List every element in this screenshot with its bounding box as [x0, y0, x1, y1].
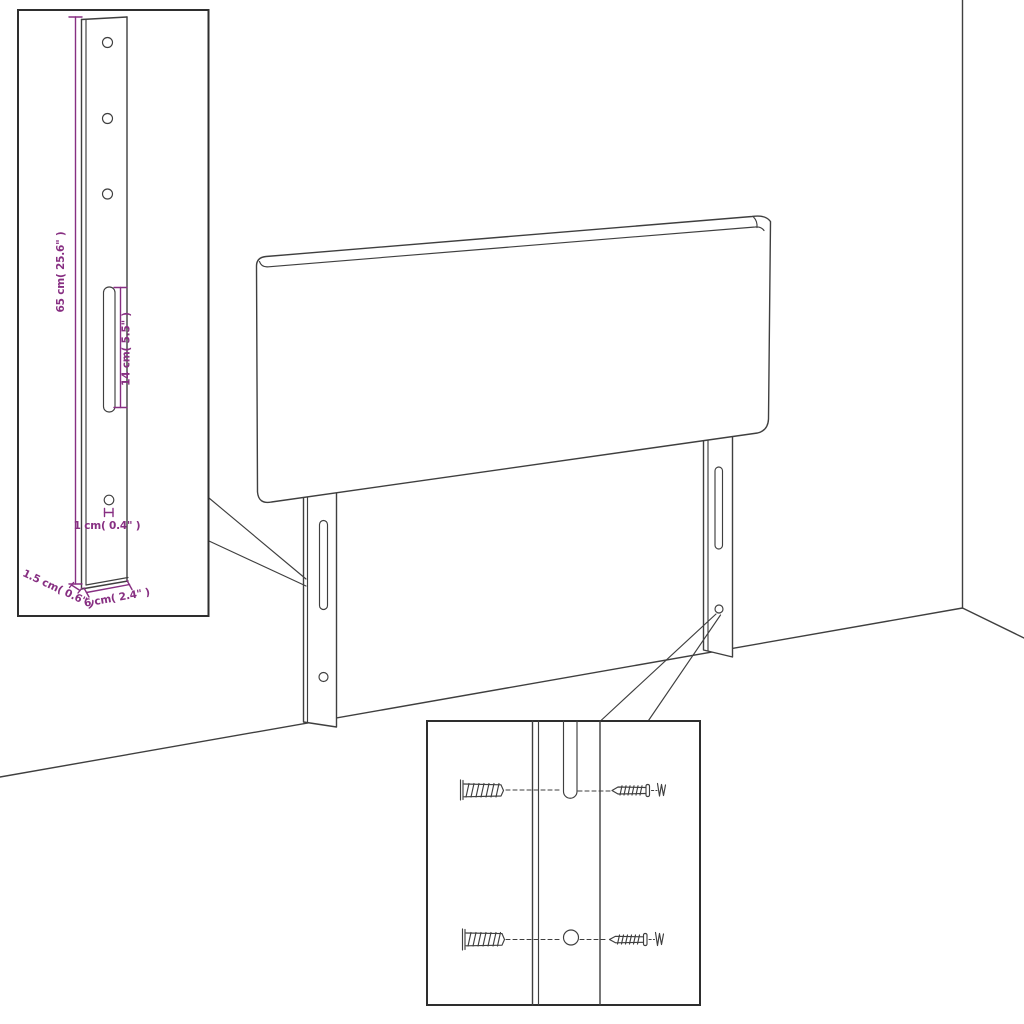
callout-line: [601, 614, 716, 721]
headboard-assembly-diagram: 65 cm( 25.6" ) 14 cm( 5.5" ) 1 cm( 0.4" …: [0, 0, 1024, 1024]
headboard-left-leg: [304, 484, 337, 727]
assembly-diagram-canvas: 65 cm( 25.6" ) 14 cm( 5.5" ) 1 cm( 0.4" …: [0, 0, 1024, 1024]
callout-lines-right-inset: [601, 614, 721, 721]
callout-lines-left-inset: [209, 498, 306, 586]
headboard-outline: [257, 216, 771, 502]
dim-label-text: 14 cm( 5.5" ): [121, 312, 133, 386]
bracket-detail-inset: 65 cm( 25.6" ) 14 cm( 5.5" ) 1 cm( 0.4" …: [18, 10, 209, 616]
label-hole-diameter: 1 cm( 0.4" ): [74, 520, 141, 532]
callout-line: [209, 498, 306, 579]
dim-label-text: 1 cm( 0.4" ): [74, 520, 141, 532]
floor-line-right: [963, 608, 1024, 638]
callout-line: [649, 615, 721, 721]
label-bracket-height: 65 cm( 25.6" ): [55, 232, 67, 313]
callout-line: [209, 541, 306, 586]
headboard-right-leg: [704, 430, 733, 657]
headboard-panel: [257, 216, 771, 502]
hardware-detail-inset: [427, 721, 700, 1005]
dim-label-text: 65 cm( 25.6" ): [55, 232, 67, 313]
label-slot-length: 14 cm( 5.5" ): [121, 312, 133, 386]
